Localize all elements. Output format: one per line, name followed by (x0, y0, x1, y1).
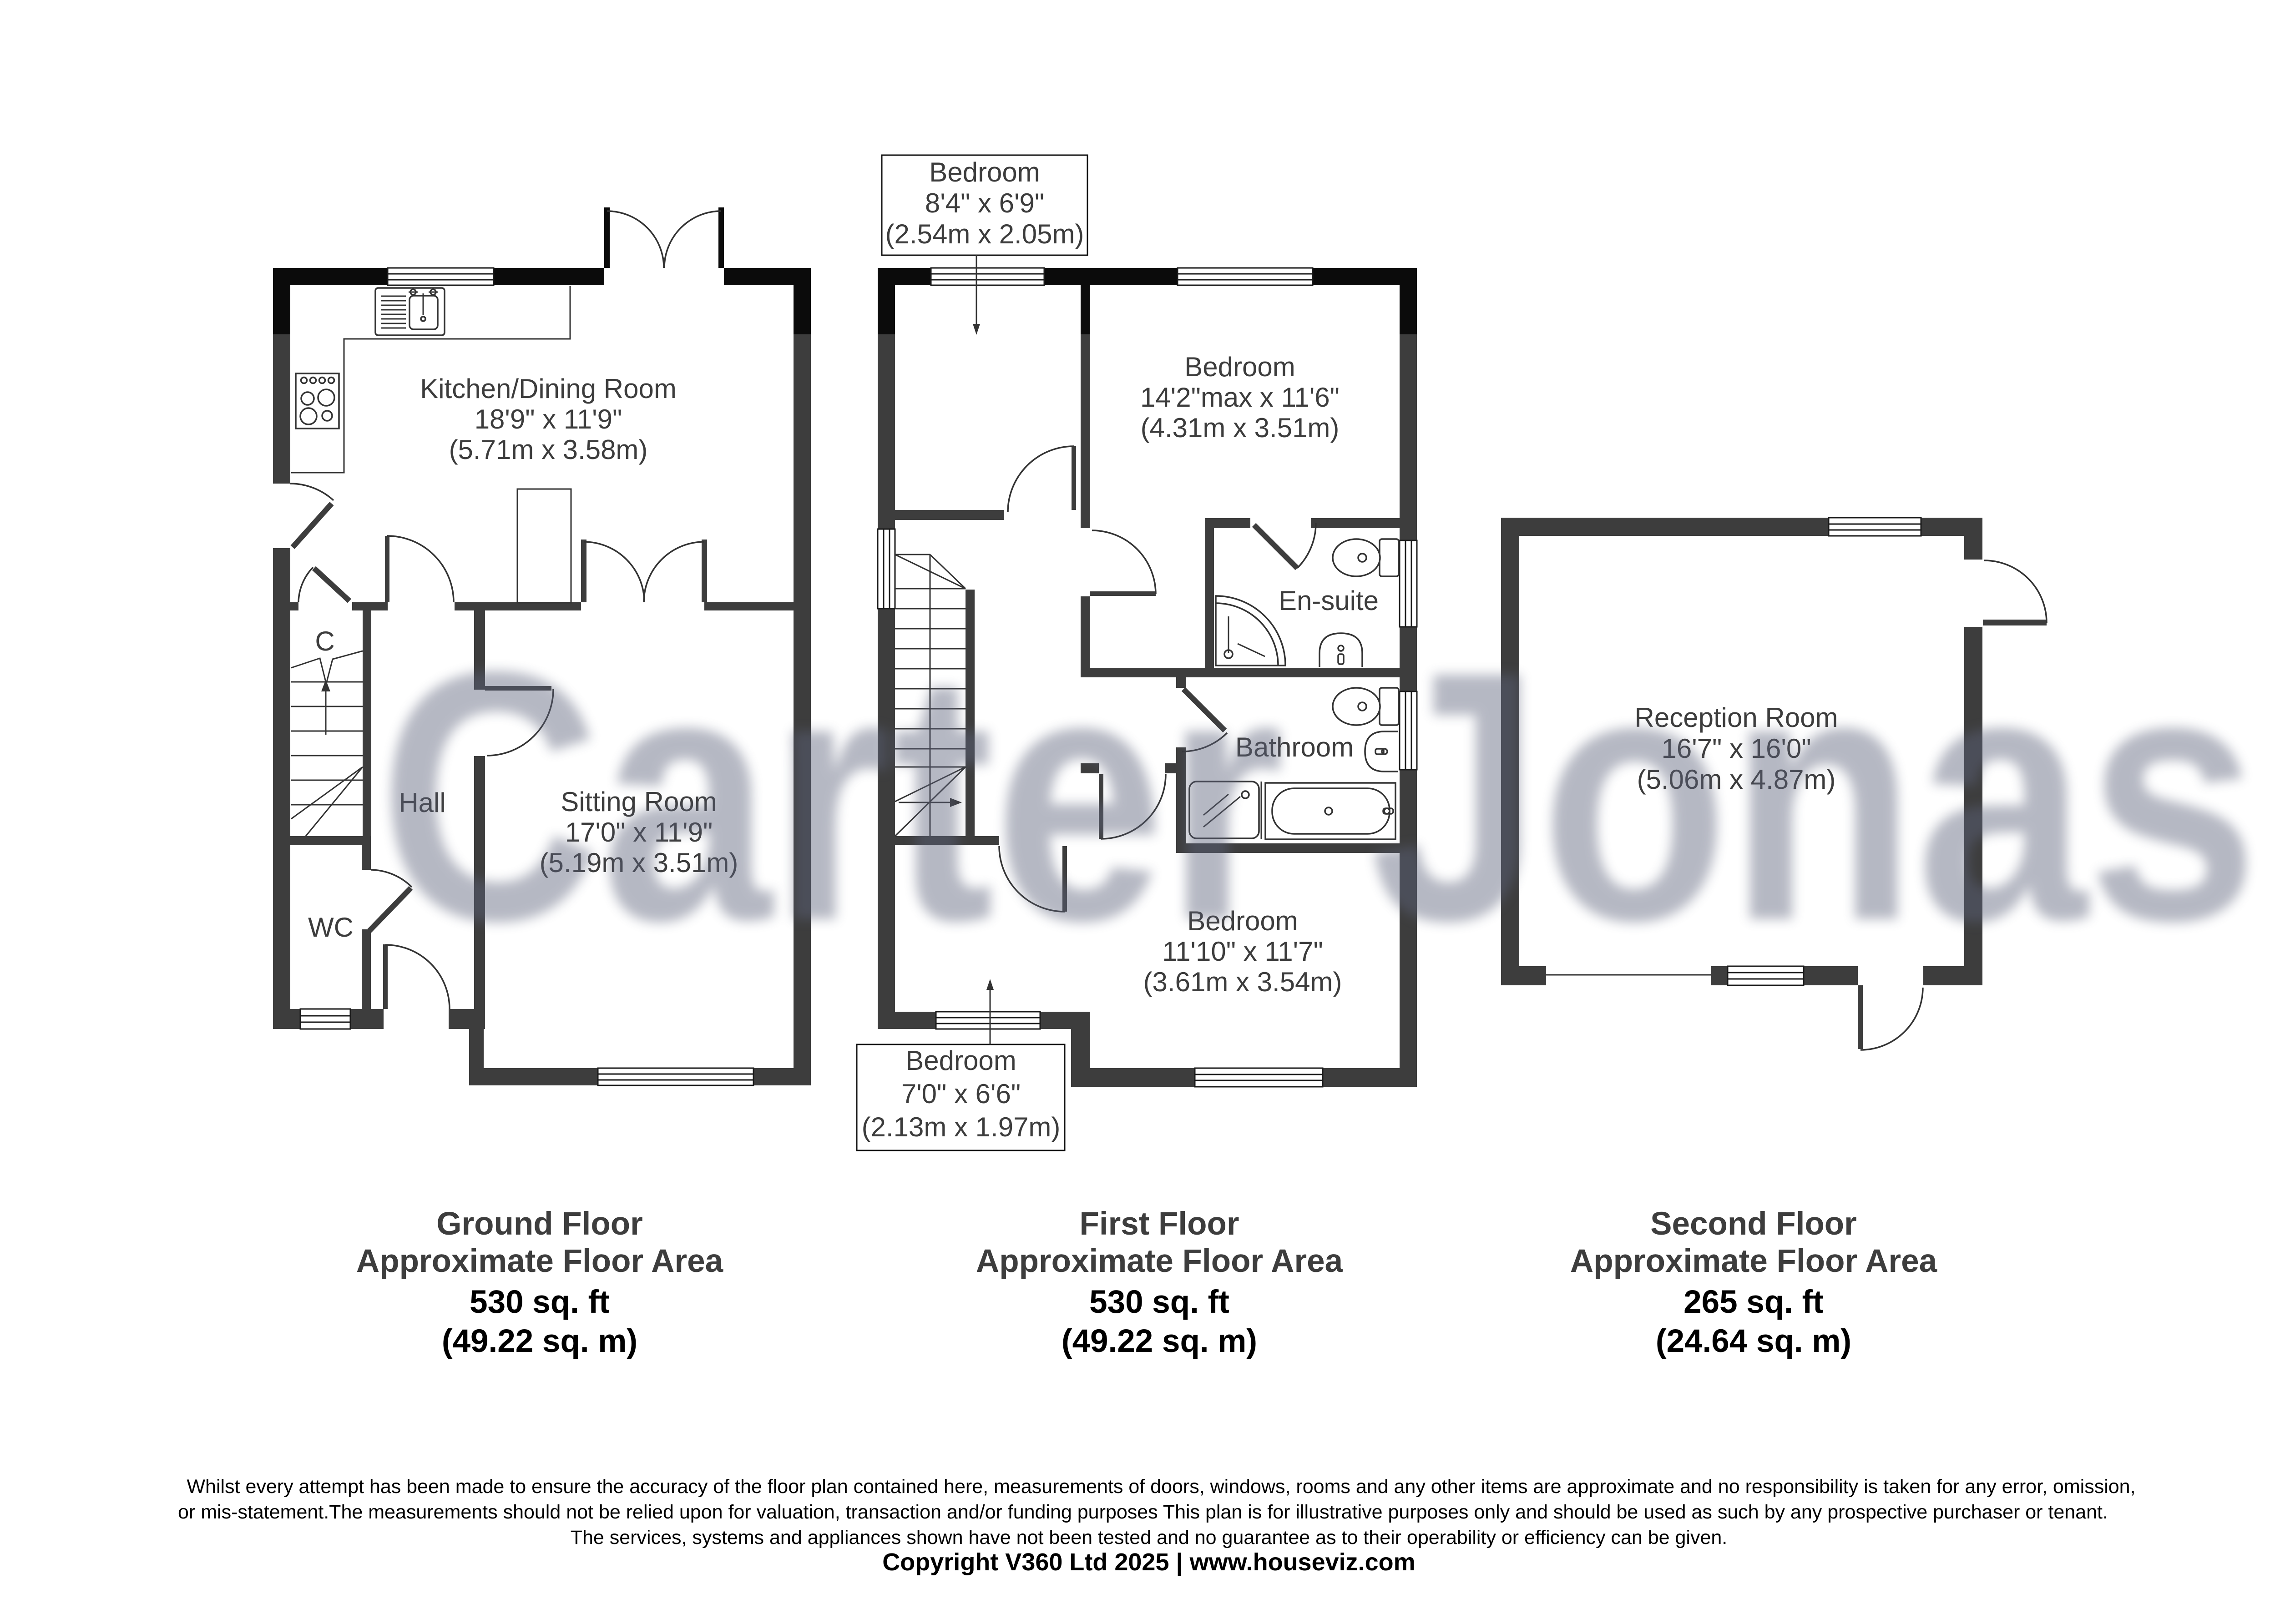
svg-text:Second Floor: Second Floor (1650, 1206, 1857, 1242)
svg-text:Whilst every attempt has been: Whilst every attempt has been made to en… (187, 1476, 2135, 1498)
svg-text:The services, systems and appl: The services, systems and appliances sho… (571, 1527, 1728, 1548)
svg-text:Kitchen/Dining Room: Kitchen/Dining Room (420, 373, 677, 404)
svg-text:WC: WC (308, 912, 354, 943)
svg-text:8'4" x 6'9": 8'4" x 6'9" (925, 188, 1044, 218)
svg-text:14'2"max x 11'6": 14'2"max x 11'6" (1140, 382, 1340, 413)
svg-text:Ground Floor: Ground Floor (436, 1206, 643, 1242)
svg-text:530 sq. ft: 530 sq. ft (1089, 1284, 1229, 1320)
svg-text:First Floor: First Floor (1079, 1206, 1239, 1242)
svg-text:(49.22 sq. m): (49.22 sq. m) (442, 1323, 637, 1359)
svg-text:Approximate Floor Area: Approximate Floor Area (976, 1243, 1343, 1279)
svg-text:530 sq. ft: 530 sq. ft (470, 1284, 610, 1320)
svg-text:265 sq. ft: 265 sq. ft (1683, 1284, 1824, 1320)
svg-text:Bedroom: Bedroom (905, 1045, 1016, 1076)
svg-text:(2.54m x 2.05m): (2.54m x 2.05m) (885, 219, 1084, 249)
svg-text:Bedroom: Bedroom (929, 157, 1040, 187)
svg-text:C: C (315, 626, 334, 656)
svg-text:(5.71m x 3.58m): (5.71m x 3.58m) (449, 434, 648, 465)
svg-text:Approximate Floor Area: Approximate Floor Area (1570, 1243, 1937, 1279)
svg-text:or mis-statement.The measureme: or mis-statement.The measurements should… (178, 1501, 2108, 1523)
svg-text:(24.64 sq. m): (24.64 sq. m) (1656, 1323, 1851, 1359)
svg-text:Bedroom: Bedroom (1184, 352, 1295, 382)
svg-text:(2.13m x 1.97m): (2.13m x 1.97m) (862, 1112, 1061, 1142)
svg-text:Approximate Floor Area: Approximate Floor Area (356, 1243, 723, 1279)
svg-text:(49.22 sq. m): (49.22 sq. m) (1062, 1323, 1257, 1359)
svg-text:Carter Jonas: Carter Jonas (379, 598, 2258, 994)
svg-text:Copyright V360 Ltd 2025 | www.: Copyright V360 Ltd 2025 | www.houseviz.c… (882, 1548, 1415, 1576)
svg-text:18'9" x 11'9": 18'9" x 11'9" (475, 404, 622, 434)
svg-text:(4.31m x 3.51m): (4.31m x 3.51m) (1141, 413, 1340, 443)
svg-text:7'0" x 6'6": 7'0" x 6'6" (901, 1079, 1021, 1109)
